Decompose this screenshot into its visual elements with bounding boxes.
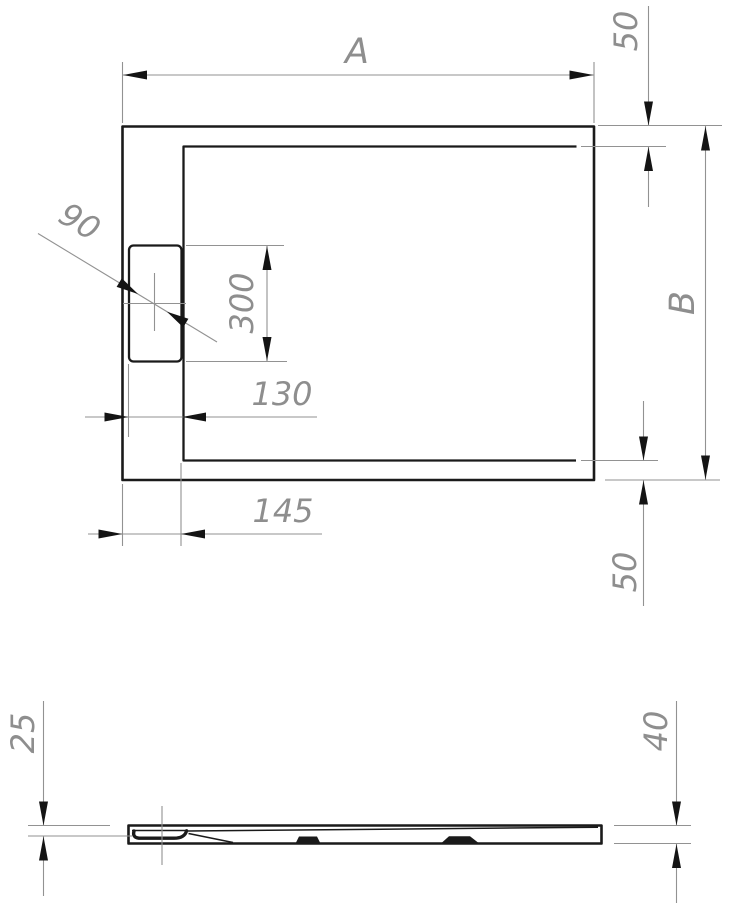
arrowhead-down-icon xyxy=(644,102,653,126)
arrowhead-right-icon xyxy=(570,71,594,80)
dimension-label: 130 xyxy=(251,375,312,413)
dimension-label: 50 xyxy=(607,11,645,52)
side-view xyxy=(129,806,602,865)
arrowhead-up-icon xyxy=(39,837,48,861)
arrowhead-down-icon xyxy=(263,337,272,361)
arrowhead-left-icon xyxy=(123,71,147,80)
dimension-label: A xyxy=(343,32,369,72)
dimension-drain-length: 300 xyxy=(186,246,287,362)
dimension-label: 40 xyxy=(637,711,675,752)
dimension-label: 145 xyxy=(252,492,313,530)
arrowhead-down-icon xyxy=(672,802,681,826)
arrowhead-down-icon xyxy=(701,456,710,480)
arrowhead-right-icon xyxy=(99,530,123,539)
underside-boss-left xyxy=(296,837,320,843)
dimension-depth-B: B xyxy=(598,126,722,481)
tray-outer-outline xyxy=(123,127,595,481)
arrowhead-left-icon xyxy=(181,530,205,539)
arrowhead-down-icon xyxy=(639,437,648,461)
dimension-label: 90 xyxy=(52,195,106,249)
technical-drawing-page: A B 50 50 90 30 xyxy=(0,0,729,908)
recess-underside-line xyxy=(189,834,234,843)
dimension-label: 50 xyxy=(606,552,644,593)
arrowhead-down-icon xyxy=(39,802,48,826)
arrowhead-up-icon xyxy=(644,147,653,171)
arrowhead-icon xyxy=(167,312,188,328)
dimension-label: 25 xyxy=(4,713,42,754)
arrowhead-left-icon xyxy=(182,413,206,422)
drain-recess-cup xyxy=(134,831,187,838)
arrowhead-up-icon xyxy=(263,246,272,270)
dimension-tray-height: 40 xyxy=(614,701,691,903)
arrowhead-icon xyxy=(117,278,138,294)
arrowhead-right-icon xyxy=(105,413,129,422)
dimension-rim-bottom: 50 xyxy=(581,401,658,606)
top-view xyxy=(123,127,595,481)
arrowhead-up-icon xyxy=(672,844,681,868)
shower-tray-drawing: A B 50 50 90 30 xyxy=(0,0,729,908)
dimension-recess-depth: 25 xyxy=(4,701,132,896)
dimension-label: B xyxy=(663,291,703,315)
underside-boss-right xyxy=(442,836,478,842)
dimension-drain-offset: 130 xyxy=(85,364,317,437)
dimension-width-A: A xyxy=(123,32,595,123)
dimension-label: 300 xyxy=(223,272,261,333)
floor-slope-line xyxy=(188,827,598,831)
dimension-drain-diameter: 90 xyxy=(38,195,217,342)
arrowhead-up-icon xyxy=(639,481,648,505)
arrowhead-up-icon xyxy=(701,127,710,151)
